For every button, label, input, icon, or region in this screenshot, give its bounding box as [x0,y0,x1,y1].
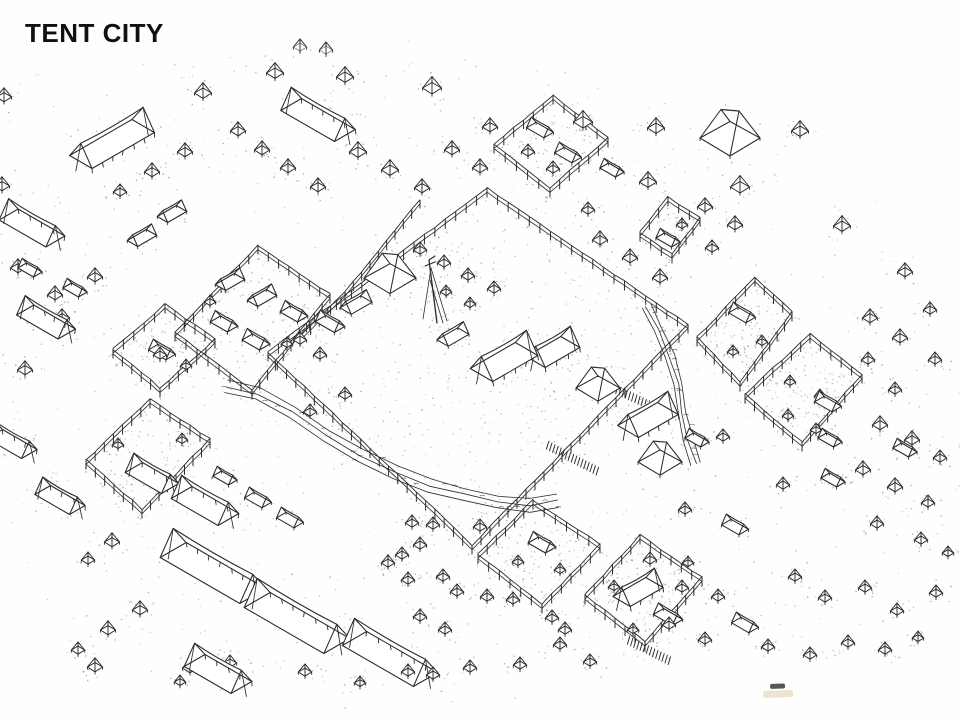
tents [0,39,954,697]
tent-city-drawing [0,0,960,720]
slide: TENT CITY [0,0,960,720]
page-title: TENT CITY [25,18,164,49]
flag-mast-and-marks [423,256,793,698]
